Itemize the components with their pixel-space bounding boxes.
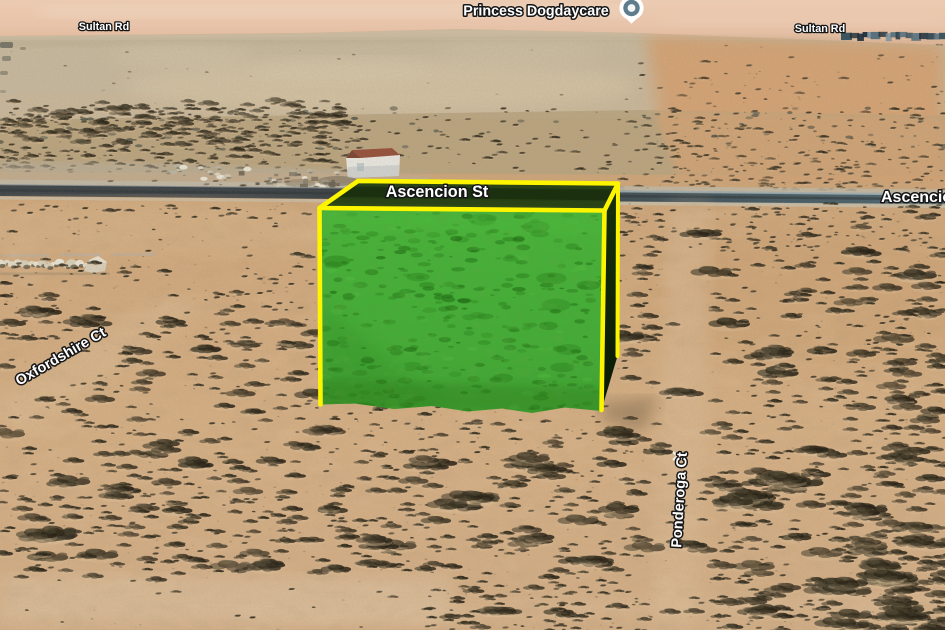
svg-text:Sultan Rd: Sultan Rd	[795, 23, 845, 35]
svg-text:Princess Dogdaycare: Princess Dogdaycare	[463, 4, 608, 20]
svg-text:Ascencion St: Ascencion St	[386, 183, 489, 201]
svg-text:Sultan Rd: Sultan Rd	[79, 21, 129, 33]
svg-text:Ascencion St: Ascencion St	[881, 189, 945, 206]
